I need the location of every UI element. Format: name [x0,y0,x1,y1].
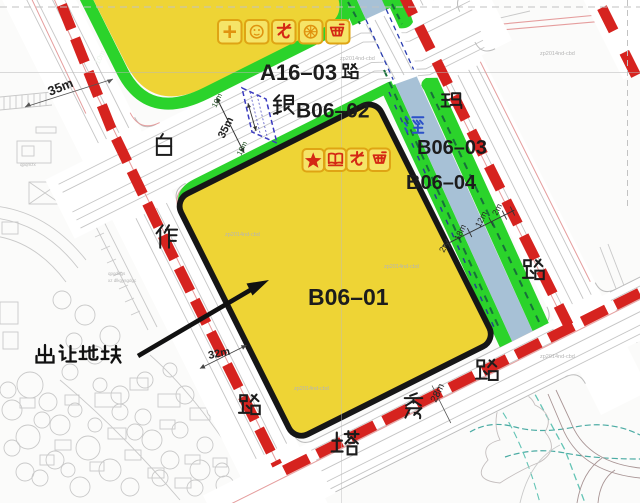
svg-text:B06–01: B06–01 [308,284,389,310]
svg-text:zp2014nd-cbd: zp2014nd-cbd [540,354,575,360]
svg-text:qpqmzx: qpqmzx [20,162,37,167]
svg-text:zp2014nd-cbd: zp2014nd-cbd [340,56,375,62]
svg-text:zp2014nd-cbd: zp2014nd-cbd [540,51,575,57]
svg-text:qpqddgs: qpqddgs [108,271,126,276]
svg-text:zp2014nd-cbd: zp2014nd-cbd [294,386,329,392]
svg-text:zp2014nd-cbd: zp2014nd-cbd [384,264,419,270]
svg-text:zp2014nd-cbd: zp2014nd-cbd [225,232,260,238]
svg-text:B06–03: B06–03 [417,137,487,159]
svg-text:B06–02: B06–02 [296,100,370,123]
svg-text:xz dlkgysgdgc: xz dlkgysgdgc [108,278,137,283]
svg-text:A16–03: A16–03 [260,60,337,85]
svg-text:B06–04: B06–04 [406,172,477,194]
